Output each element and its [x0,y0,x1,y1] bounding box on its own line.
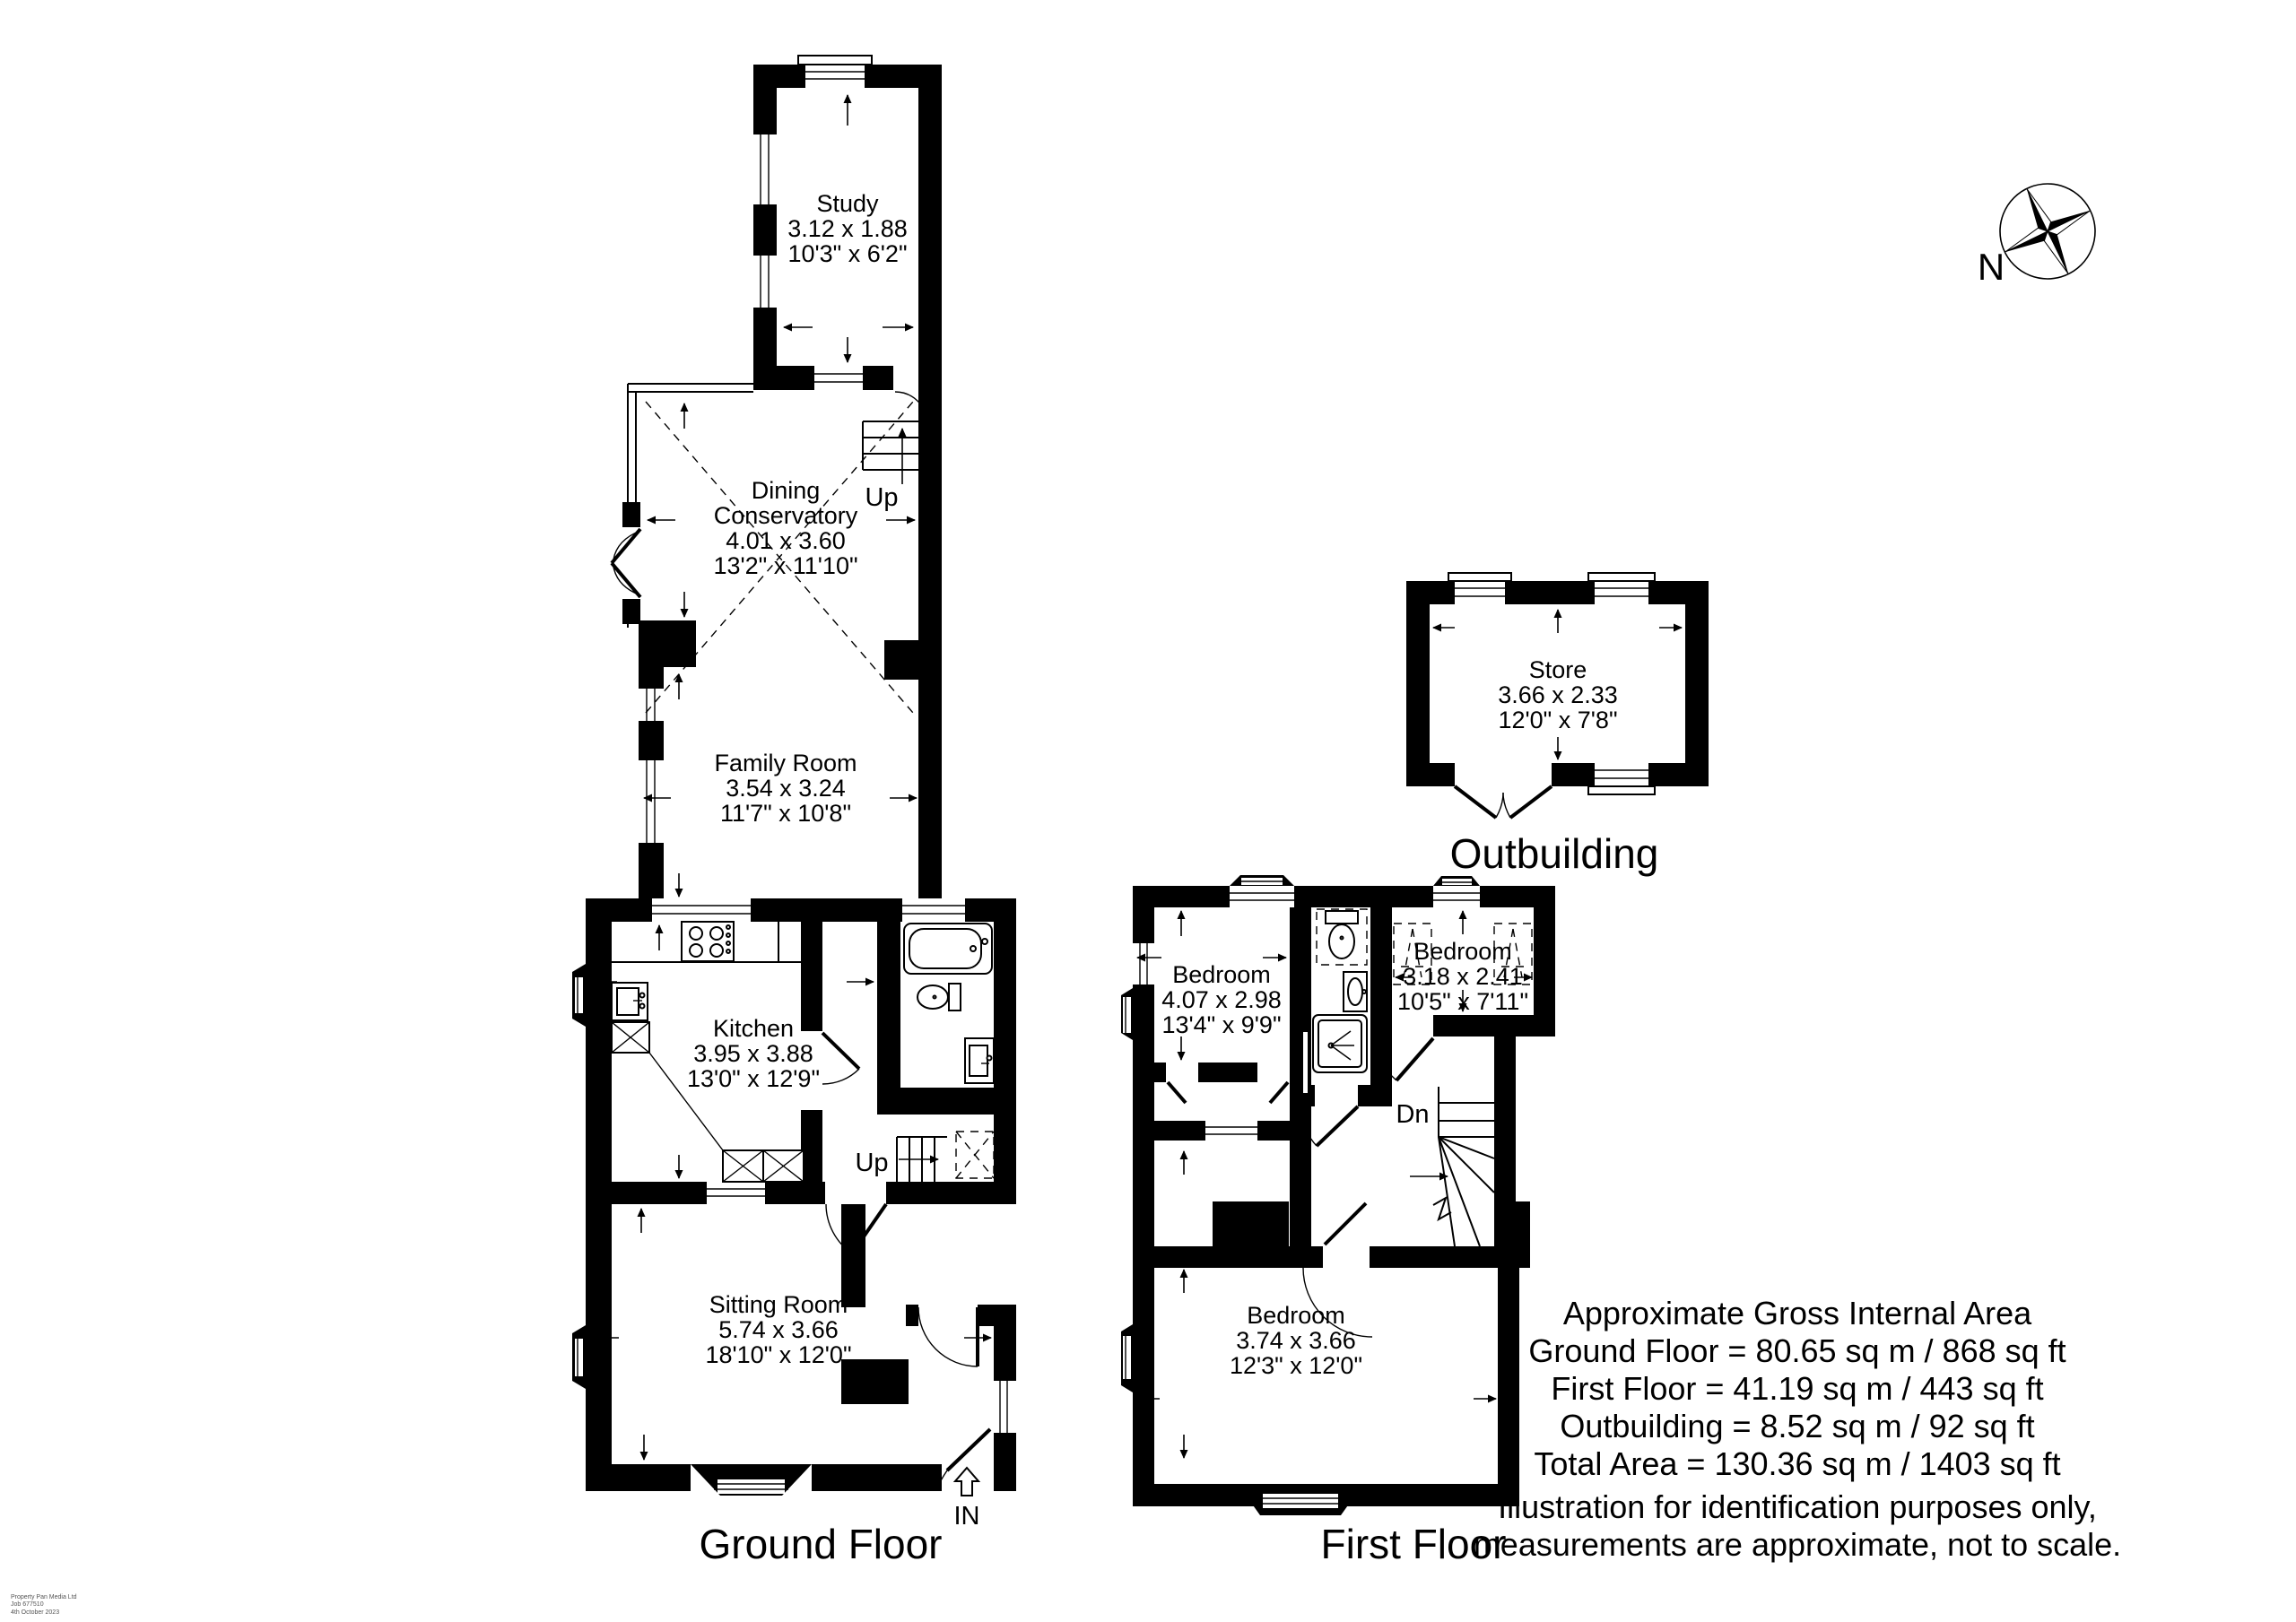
floorplan-drawing: IN Study 3.12 x 1.88 10'3" x 6'2" Dining… [0,0,2296,1622]
ground-floor-plan: IN Study 3.12 x 1.88 10'3" x 6'2" Dining… [572,56,1016,1567]
sitting-room-label: Sitting Room [709,1291,848,1318]
bedroom2-metric: 3.18 x 2.41 [1403,963,1523,990]
shower-room-fixtures [1302,909,1367,1094]
first-floor-plan: Bedroom 4.07 x 2.98 13'4" x 9'9" Bedroom… [1121,875,1555,1567]
store-imperial: 12'0" x 7'8" [1498,707,1617,733]
ground-floor-title: Ground Floor [699,1521,942,1567]
shower-cubicle [1313,1015,1367,1072]
sitting-room-imperial: 18'10" x 12'0" [705,1341,851,1368]
credit-line-1: Property Pan Media Ltd [11,1594,77,1600]
disclaimer-line-2: measurements are approximate, not to sca… [1474,1526,2121,1563]
bedroom1-metric: 4.07 x 2.98 [1161,986,1282,1013]
outbuilding-plan: Store 3.66 x 2.33 12'0" x 7'8" Outbuildi… [1406,573,1709,877]
kitchen-label: Kitchen [713,1015,794,1042]
bathtub [904,924,992,974]
bathroom-fixtures [904,924,994,1083]
store-label: Store [1529,656,1587,683]
outbuilding-room-labels: Store 3.66 x 2.33 12'0" x 7'8" [1498,656,1618,733]
area-summary: Approximate Gross Internal Area Ground F… [1474,1295,2121,1563]
conservatory-stairs-label: Up [865,483,898,512]
credit-line-3: 4th October 2023 [11,1609,59,1616]
bedroom1-imperial: 13'4" x 9'9" [1161,1011,1281,1038]
shower-toilet [1326,911,1358,958]
area-summary-first: First Floor = 41.19 sq m / 443 sq ft [1551,1370,2043,1407]
entrance-in-marker: IN [954,1468,980,1531]
conservatory-label-1: Dining [752,477,821,504]
hall-stairs [897,1132,994,1182]
bedroom1-label: Bedroom [1172,961,1271,988]
disclaimer-line-1: Illustration for identification purposes… [1498,1488,2097,1525]
stairs-down-label: Dn [1396,1100,1429,1129]
floorplan-page: IN Study 3.12 x 1.88 10'3" x 6'2" Dining… [0,0,2296,1622]
outbuilding-doors [1455,786,1552,818]
study-imperial: 10'3" x 6'2" [787,240,907,267]
kitchen-hob [682,922,734,961]
bedroom3-imperial: 12'3" x 12'0" [1230,1352,1362,1379]
area-summary-heading: Approximate Gross Internal Area [1563,1295,2032,1331]
entrance-label: IN [954,1502,980,1531]
bedroom3-label: Bedroom [1247,1302,1345,1329]
family-room-imperial: 11'7" x 10'8" [720,800,851,827]
hall-stairs-label: Up [855,1149,888,1177]
study-metric: 3.12 x 1.88 [787,215,908,242]
bedroom3-metric: 3.74 x 3.66 [1236,1327,1356,1354]
kitchen-imperial: 13'0" x 12'9" [687,1065,820,1092]
credit-line-2: Job 677510 [11,1601,44,1608]
kitchen-sink [612,983,648,1020]
bedroom2-label: Bedroom [1413,938,1512,965]
kitchen-metric: 3.95 x 3.88 [693,1040,813,1067]
shower-sink [1344,972,1367,1011]
sitting-room-metric: 5.74 x 3.66 [718,1316,839,1343]
study-label: Study [816,190,879,217]
conservatory-imperial: 13'2" x 11'10" [713,552,857,579]
area-summary-ground: Ground Floor = 80.65 sq m / 868 sq ft [1528,1332,2066,1369]
bathroom-sink [965,1038,994,1083]
compass-north-label: N [1978,246,2005,288]
family-room-metric: 3.54 x 3.24 [726,775,846,802]
store-metric: 3.66 x 2.33 [1498,681,1618,708]
family-room-label: Family Room [714,750,857,776]
bedroom2-imperial: 10'5" x 7'11" [1397,988,1528,1015]
area-summary-outbuilding: Outbuilding = 8.52 sq m / 92 sq ft [1560,1408,2034,1444]
credit-block: Property Pan Media Ltd Job 677510 4th Oc… [11,1594,77,1616]
toilet [918,984,961,1010]
outbuilding-title: Outbuilding [1450,830,1659,877]
compass: N [1978,168,2111,295]
conservatory-metric: 4.01 x 3.60 [726,527,846,554]
area-summary-total: Total Area = 130.36 sq m / 1403 sq ft [1534,1445,2060,1482]
conservatory-label-2: Conservatory [714,502,858,529]
